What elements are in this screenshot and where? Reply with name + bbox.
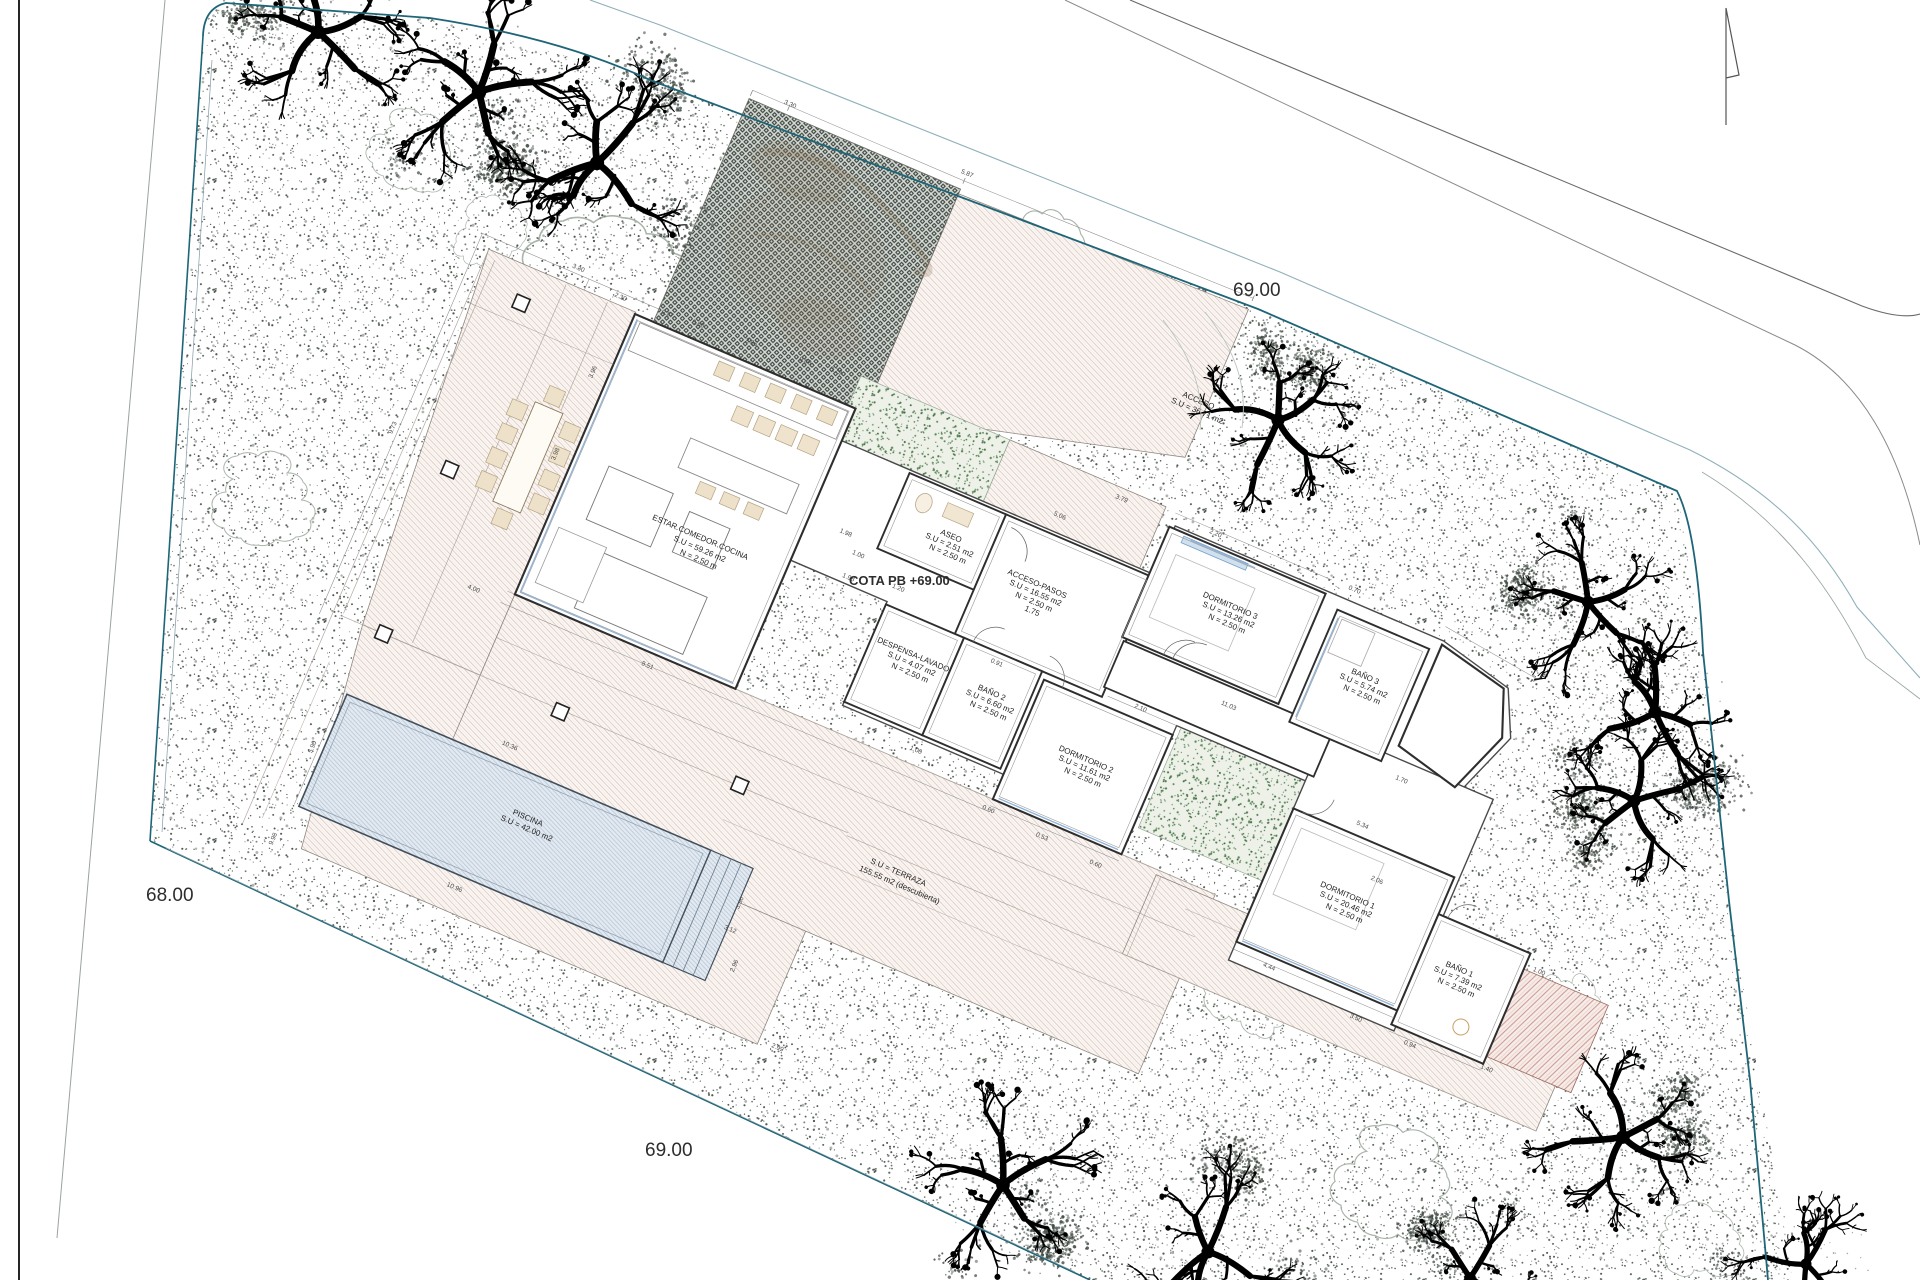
- svg-text:69.00: 69.00: [645, 1140, 693, 1161]
- svg-text:68.00: 68.00: [146, 885, 194, 906]
- svg-text:69.00: 69.00: [1233, 280, 1281, 301]
- svg-text:COTA PB +69.00: COTA PB +69.00: [849, 573, 950, 588]
